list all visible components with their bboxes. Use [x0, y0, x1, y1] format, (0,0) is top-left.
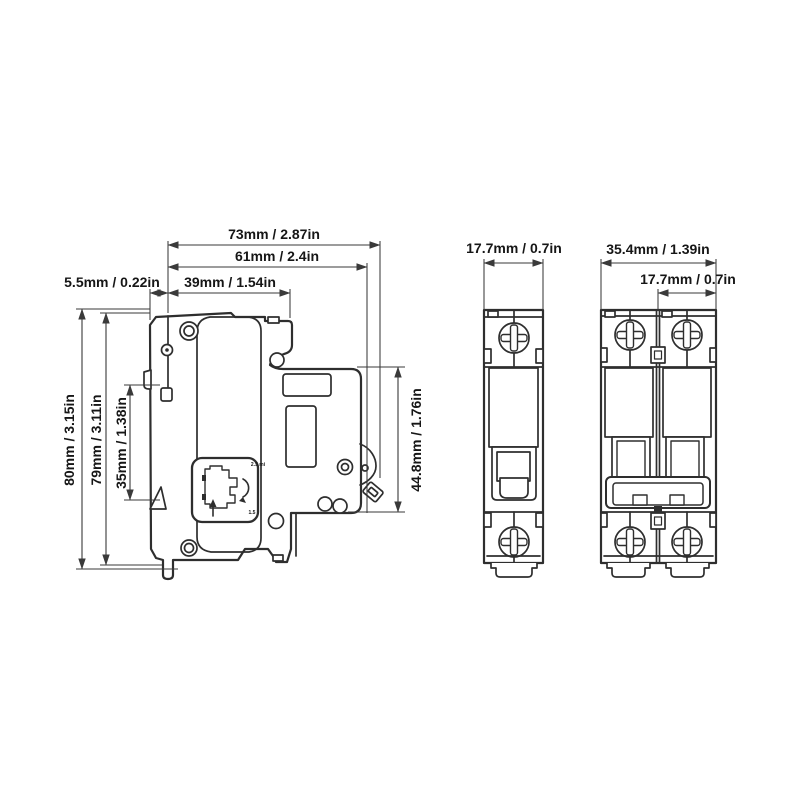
dim-total-height: 80mm / 3.15in	[61, 309, 82, 569]
toggle-window	[286, 406, 316, 467]
side-clip-outer-right-bottom	[710, 513, 716, 527]
front-foot-notch	[273, 555, 283, 561]
phillips-screw-pole1-top-icon	[615, 320, 645, 350]
mount-screw-top-icon	[180, 322, 198, 340]
single-pole-dimensions: 17.7mm / 0.7in	[466, 240, 562, 310]
dim-double-pole-width-label: 17.7mm / 0.7in	[640, 271, 736, 287]
detail-bottom-label: 1.5	[249, 510, 256, 516]
front-view-single-pole: 17.7mm / 0.7in	[466, 240, 562, 577]
face-hole-left	[318, 497, 332, 511]
body-hole-bottom	[269, 514, 284, 529]
detail-top-label: 2.5 mi	[251, 462, 266, 468]
breaker-dimension-diagram: 2.5 mi 1.5 73mm / 2.87in 61mm / 2.4in 39	[0, 0, 800, 800]
top-notch-pole2	[662, 311, 672, 317]
top-notch	[488, 311, 498, 317]
dim-rail-slot-height: 35mm / 1.38in	[113, 385, 130, 500]
din-rail-tab-icon	[144, 370, 151, 389]
base-foot-pole2	[666, 563, 709, 577]
side-clip-outer-left-bottom	[601, 513, 607, 527]
dim-rail-slot-height-label: 35mm / 1.38in	[113, 397, 129, 489]
dim-total-width-label: 73mm / 2.87in	[228, 226, 320, 242]
detail-clip-mark-top	[202, 475, 206, 481]
detail-clip-mark-bottom	[202, 494, 206, 500]
dim-total-height-label: 80mm / 3.15in	[61, 394, 77, 486]
breaker-side-outline	[150, 313, 361, 579]
side-clip-left-top	[484, 349, 491, 363]
dim-front-width-label: 39mm / 1.54in	[184, 274, 276, 290]
side-clip-outer-left-top	[601, 348, 607, 362]
dim-body-height: 79mm / 3.11in	[88, 313, 106, 565]
dimension-drawing-page: 2.5 mi 1.5 73mm / 2.87in 61mm / 2.4in 39	[0, 0, 800, 800]
dim-rail-depth-label: 5.5mm / 0.22in	[64, 274, 160, 290]
side-clip-left-bottom	[484, 513, 491, 527]
terminal-notch	[268, 317, 279, 323]
seam-clip-top	[651, 347, 665, 363]
dim-double-pole-width: 17.7mm / 0.7in	[640, 271, 736, 293]
dim-total-width: 73mm / 2.87in	[168, 226, 380, 245]
top-notch-pole1	[605, 311, 615, 317]
back-plate-lug	[161, 388, 172, 401]
toggle-handle-lip	[500, 478, 528, 498]
side-clip-outer-right-top	[710, 348, 716, 362]
joined-toggle-handle	[606, 477, 710, 513]
dim-body-width-label: 61mm / 2.4in	[235, 248, 319, 264]
phillips-screw-bottom-icon	[499, 527, 529, 557]
phillips-screw-pole2-top-icon	[672, 320, 702, 350]
seam-clip-bottom	[651, 513, 665, 529]
lever-pivot-pin	[342, 464, 349, 471]
phillips-screw-top-icon	[499, 323, 529, 353]
dim-face-height-label: 44.8mm / 1.76in	[408, 388, 424, 492]
dim-single-width: 17.7mm / 0.7in	[466, 240, 562, 263]
din-mount-detail-callout: 2.5 mi 1.5	[192, 458, 266, 522]
dim-front-width: 39mm / 1.54in	[168, 274, 290, 293]
double-pole-drawing	[601, 310, 716, 577]
dim-face-height: 44.8mm / 1.76in	[398, 367, 424, 512]
side-view: 2.5 mi 1.5 73mm / 2.87in 61mm / 2.4in 39	[61, 226, 424, 579]
front-view-double-pole: 35.4mm / 1.39in 17.7mm / 0.7in	[601, 241, 736, 577]
mount-screw-bottom-icon	[181, 540, 197, 556]
double-pole-dimensions: 35.4mm / 1.39in 17.7mm / 0.7in	[601, 241, 736, 310]
dim-body-width: 61mm / 2.4in	[168, 248, 367, 267]
dim-single-width-label: 17.7mm / 0.7in	[466, 240, 562, 256]
dim-double-total-width-label: 35.4mm / 1.39in	[606, 241, 710, 257]
rivet-icon	[162, 345, 173, 356]
toggle-handle	[497, 452, 530, 481]
phillips-screw-pole2-bottom-icon	[672, 527, 702, 557]
side-view-drawing: 2.5 mi 1.5	[144, 313, 384, 579]
label-window	[283, 374, 331, 396]
base-foot-pole1	[607, 563, 650, 577]
single-pole-drawing	[484, 310, 543, 577]
side-clip-right-top	[536, 349, 543, 363]
side-clip-right-bottom	[536, 513, 543, 527]
base-foot	[491, 563, 537, 577]
face-hole-right	[333, 499, 347, 513]
pivot-hole-top	[270, 353, 284, 367]
dim-body-height-label: 79mm / 3.11in	[88, 394, 104, 485]
phillips-screw-pole1-bottom-icon	[615, 527, 645, 557]
dim-rail-depth: 5.5mm / 0.22in	[64, 274, 168, 293]
dim-double-total-width: 35.4mm / 1.39in	[601, 241, 716, 263]
